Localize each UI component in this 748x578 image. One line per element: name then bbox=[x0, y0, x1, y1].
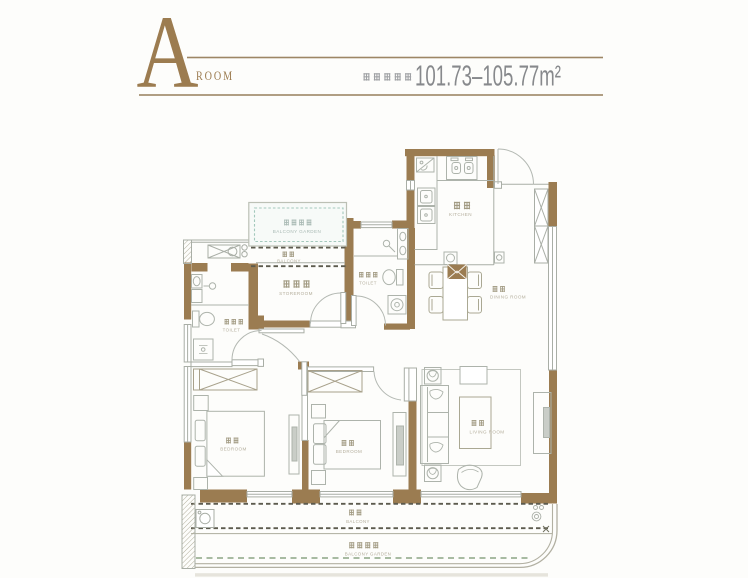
svg-text:101.73–105.77m²: 101.73–105.77m² bbox=[415, 61, 561, 93]
svg-text:A: A bbox=[137, 0, 199, 110]
svg-text:TOILET: TOILET bbox=[223, 328, 241, 333]
svg-text:BEDROOM: BEDROOM bbox=[220, 447, 247, 452]
svg-text:LIVING ROOM: LIVING ROOM bbox=[469, 430, 504, 435]
svg-text:BALCONY: BALCONY bbox=[346, 519, 370, 524]
svg-text:BALCONY GARDEN: BALCONY GARDEN bbox=[345, 552, 392, 557]
svg-text:BEDROOM: BEDROOM bbox=[336, 449, 363, 454]
svg-text:STOREROOM: STOREROOM bbox=[279, 291, 313, 296]
svg-text:BALCONY GARDEN: BALCONY GARDEN bbox=[273, 229, 321, 234]
svg-text:ROOM: ROOM bbox=[196, 68, 234, 83]
svg-text:KITCHEN: KITCHEN bbox=[449, 212, 472, 217]
svg-text:TOILET: TOILET bbox=[359, 281, 377, 286]
svg-text:DINING ROOM: DINING ROOM bbox=[490, 295, 526, 300]
svg-text:BALCONY: BALCONY bbox=[277, 259, 301, 264]
